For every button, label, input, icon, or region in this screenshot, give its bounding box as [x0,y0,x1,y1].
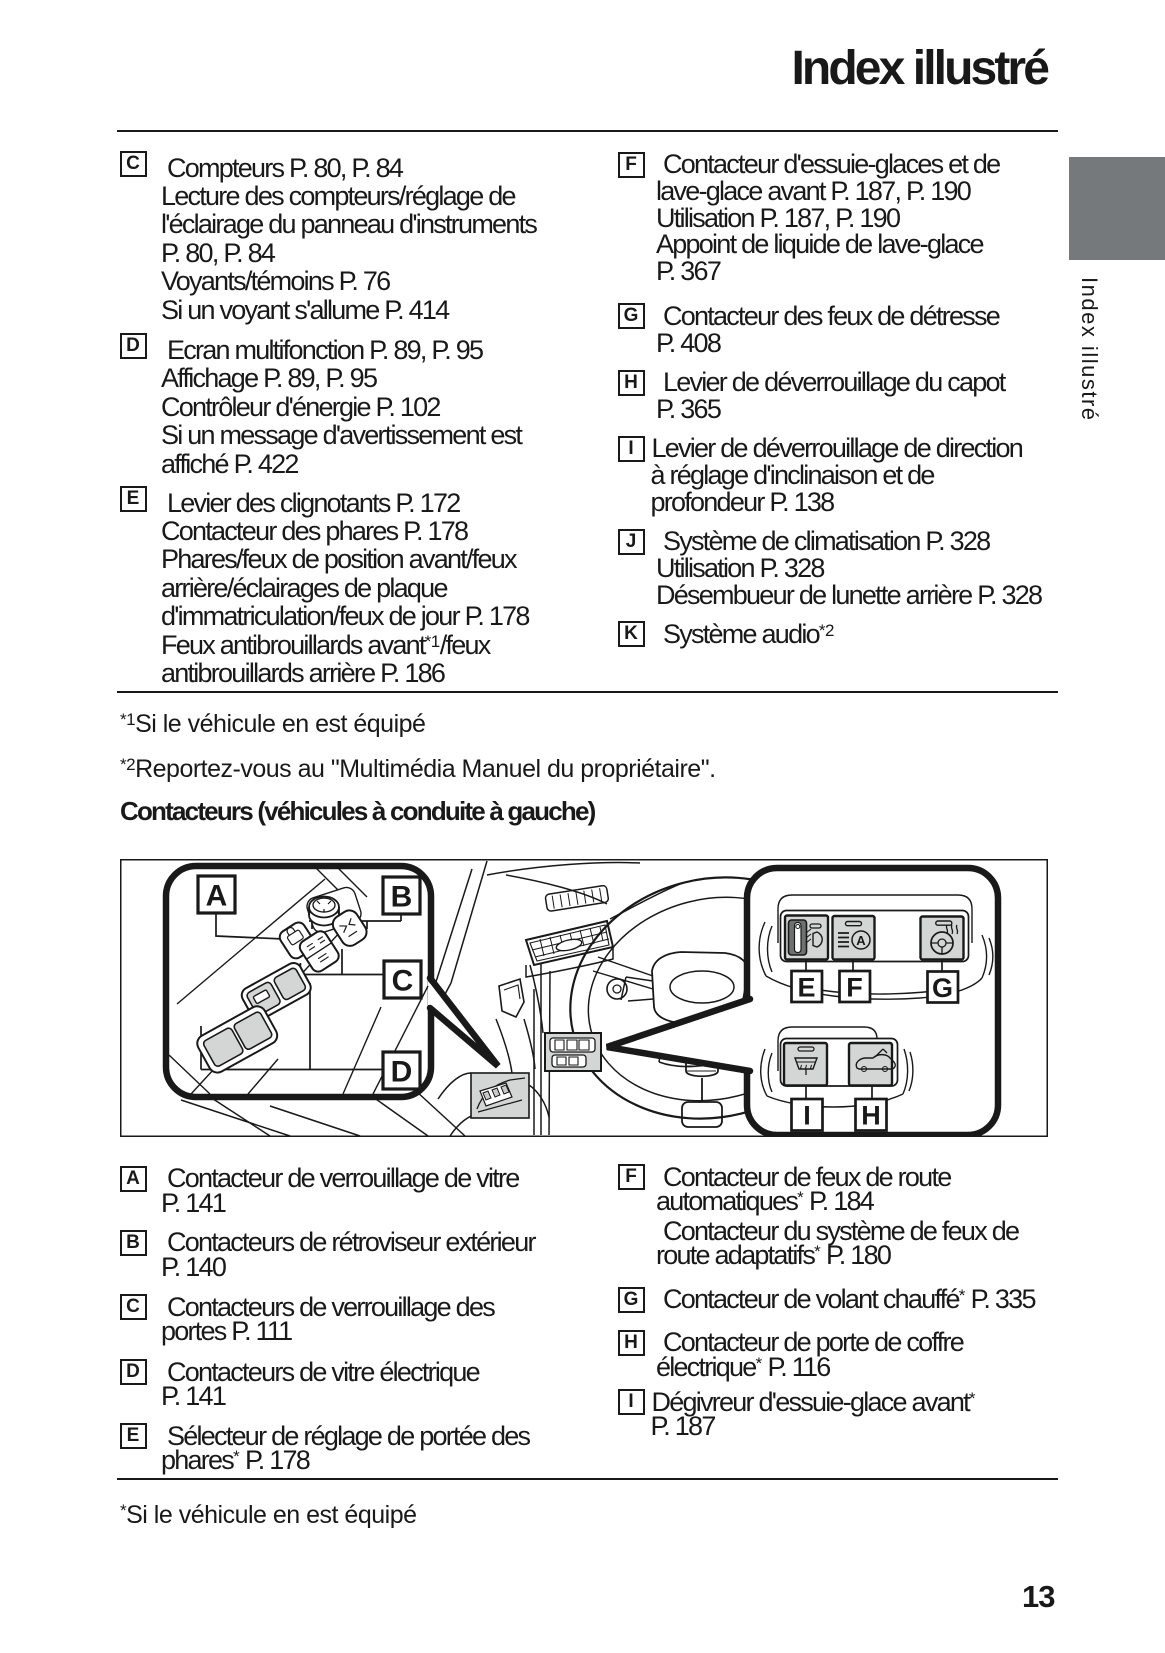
svg-text:G: G [932,973,953,1003]
svg-text:F: F [846,973,863,1003]
svg-text:C: C [392,965,414,998]
svg-text:D: D [391,1056,413,1089]
svg-text:B: B [391,881,413,914]
svg-text:A: A [206,880,228,913]
svg-text:H: H [861,1101,881,1131]
svg-text:E: E [797,973,815,1003]
svg-text:A: A [856,933,866,948]
svg-text:I: I [803,1101,811,1131]
